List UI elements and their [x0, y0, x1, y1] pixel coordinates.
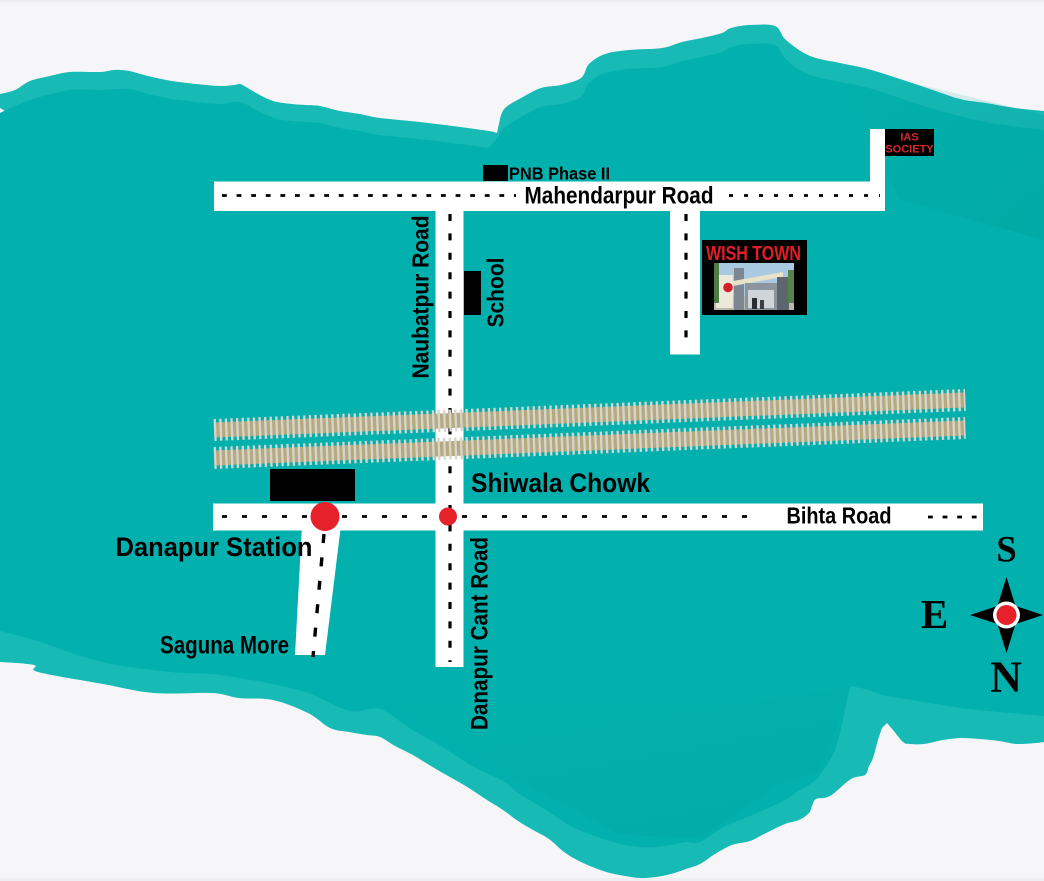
svg-text:IAS: IAS: [900, 132, 918, 144]
svg-text:WISH TOWN: WISH TOWN: [706, 243, 801, 265]
svg-text:S: S: [996, 529, 1016, 570]
svg-text:Shiwala Chowk: Shiwala Chowk: [471, 468, 650, 498]
svg-text:Bihta Road: Bihta Road: [787, 503, 892, 529]
svg-text:Saguna More: Saguna More: [160, 632, 289, 660]
svg-text:Danapur Cant Road: Danapur Cant Road: [467, 537, 494, 730]
svg-text:N: N: [990, 653, 1022, 702]
svg-text:E: E: [921, 591, 948, 637]
svg-text:SOCIETY: SOCIETY: [885, 144, 934, 156]
svg-text:PNB Phase II: PNB Phase II: [509, 163, 610, 183]
svg-text:School: School: [483, 258, 509, 328]
svg-text:Mahendarpur Road: Mahendarpur Road: [525, 183, 714, 210]
svg-text:Danapur Station: Danapur Station: [116, 532, 313, 562]
svg-text:Naubatpur Road: Naubatpur Road: [408, 216, 434, 379]
